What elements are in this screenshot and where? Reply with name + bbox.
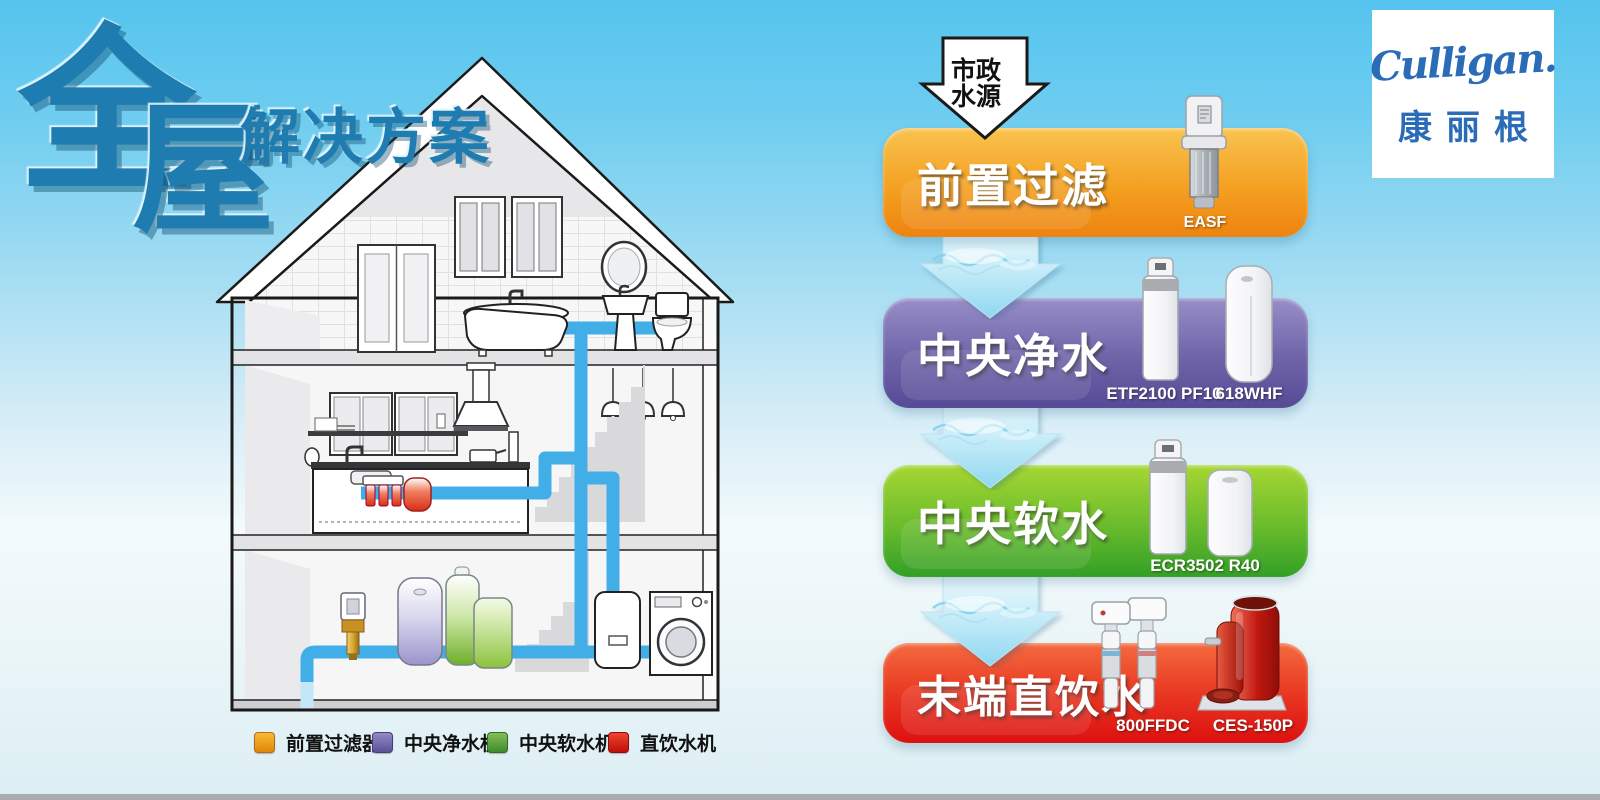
product-800ffdc-and-ces150p (1085, 588, 1290, 716)
legend-swatch-purple-icon (372, 732, 393, 753)
culligan-logo-chinese: 康丽根 (1384, 100, 1542, 149)
legend-swatch-orange-icon (254, 732, 275, 753)
legend-label: 前置过滤器 (286, 729, 381, 756)
legend-label: 中央软水机 (519, 729, 614, 756)
product-model-label: EASF (1155, 214, 1255, 232)
title-suffix: 解决方案 (240, 108, 492, 168)
water-heater (595, 592, 640, 668)
under-sink-ro-filter (363, 476, 431, 511)
legend-label: 直饮水机 (640, 729, 716, 756)
bathroom-door (358, 245, 435, 352)
washing-machine (650, 592, 712, 675)
product-ecr3502-and-r40 (1140, 428, 1260, 560)
legend-item-purifier: 中央净水机 (372, 729, 499, 756)
water-flow-arrow-icon (903, 566, 1078, 668)
legend-item-drinking: 直饮水机 (608, 729, 716, 756)
legend-swatch-green-icon (487, 732, 508, 753)
central-purifier-tank (398, 578, 442, 665)
step-label: 前置过滤 (917, 128, 1109, 237)
product-model-label: CES-150P (1203, 716, 1303, 736)
legend-swatch-red-icon (608, 732, 629, 753)
product-etf2100-and-618whf (1135, 252, 1280, 387)
product-easf-prefilter (1176, 92, 1232, 216)
mirror (602, 242, 646, 292)
legend-label: 中央净水机 (404, 729, 499, 756)
poster-canvas: 全 屋 解决方案 (0, 0, 1600, 800)
municipal-source-line1: 市政 (918, 58, 1034, 84)
municipal-source-label: 市政 水源 (918, 58, 1034, 110)
product-model-label: ECR3502 R40 (1135, 556, 1275, 576)
culligan-logo: Culligan. (1369, 34, 1557, 91)
product-model-label: 800FFDC (1103, 716, 1203, 736)
legend-item-prefilter: 前置过滤器 (254, 729, 381, 756)
product-model-label: 618WHF (1199, 384, 1299, 404)
legend-item-softener: 中央软水机 (487, 729, 614, 756)
municipal-source-line2: 水源 (918, 84, 1034, 110)
brand-logo-box: Culligan. 康丽根 (1372, 10, 1554, 178)
bottom-edge-bar (0, 794, 1600, 800)
